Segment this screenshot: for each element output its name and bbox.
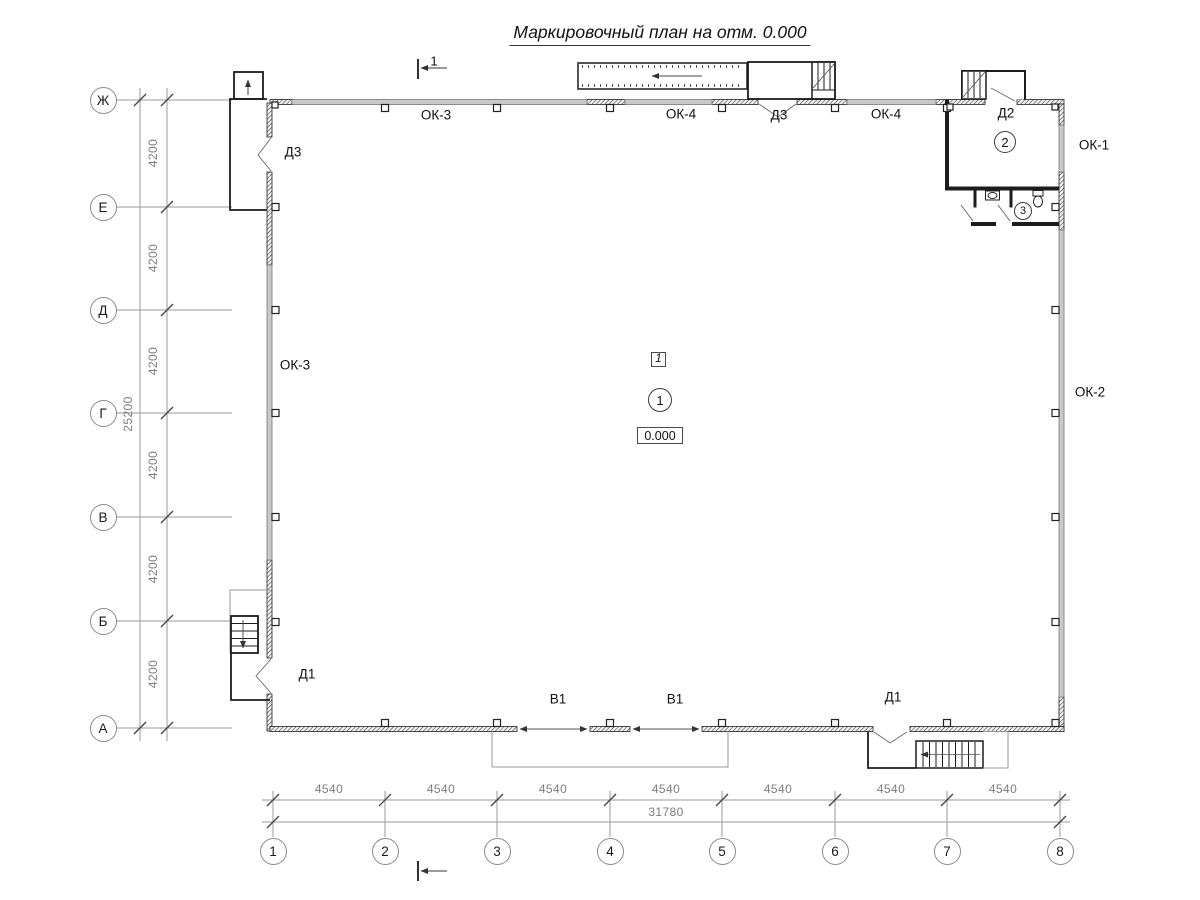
axis-col-3: 3 bbox=[484, 838, 511, 865]
door-swing-d1-left bbox=[256, 659, 271, 693]
axis-col-4: 4 bbox=[597, 838, 624, 865]
entrance-block-top-left bbox=[230, 72, 267, 210]
section-mark-label: 1 bbox=[430, 54, 437, 69]
dim-v-1: 4200 bbox=[146, 139, 160, 167]
dim-h-5: 4540 bbox=[764, 782, 792, 796]
axis-grid-lines bbox=[116, 88, 1070, 837]
dim-h-total: 31780 bbox=[648, 805, 683, 819]
gate-mark-v1-a: В1 bbox=[550, 692, 567, 707]
door-swing-wc1 bbox=[961, 205, 973, 221]
floor-plan-canvas: Маркировочный план на отм. 0.000 ОК-3 ОК… bbox=[0, 0, 1200, 900]
pilasters bbox=[272, 102, 1059, 727]
room-number-2: 2 bbox=[994, 131, 1016, 153]
axis-row-a: А bbox=[90, 715, 117, 742]
axis-row-v: В bbox=[90, 504, 117, 531]
axis-col-2: 2 bbox=[372, 838, 399, 865]
dim-h-7: 4540 bbox=[989, 782, 1017, 796]
dim-v-6: 4200 bbox=[146, 660, 160, 688]
room-number-1: 1 bbox=[648, 388, 672, 412]
door-mark-d3-left: Д3 bbox=[285, 145, 302, 160]
vestibule-top-right bbox=[962, 71, 1025, 100]
stair-block-bottom-right bbox=[868, 732, 1008, 769]
exterior-walls-hatched bbox=[267, 100, 1064, 732]
dim-h-4: 4540 bbox=[652, 782, 680, 796]
dim-v-4: 4200 bbox=[146, 451, 160, 479]
axis-row-d: Д bbox=[90, 297, 117, 324]
interior-walls bbox=[255, 100, 1059, 654]
door-swing-d1-bottom bbox=[874, 732, 907, 743]
stair-block-bottom-left bbox=[230, 590, 270, 700]
dim-h-3: 4540 bbox=[539, 782, 567, 796]
dim-h-6: 4540 bbox=[877, 782, 905, 796]
door-mark-d3-top: Д3 bbox=[771, 108, 788, 123]
floor-type-mark: 1 bbox=[651, 352, 666, 367]
window-mark-ok1: ОК-1 bbox=[1079, 138, 1109, 153]
window-mark-ok4-a: ОК-4 bbox=[666, 107, 696, 122]
dim-v-2: 4200 bbox=[146, 244, 160, 272]
door-swing-d3-left bbox=[258, 138, 271, 171]
dim-v-total: 25200 bbox=[121, 396, 135, 431]
door-mark-d1-left: Д1 bbox=[299, 667, 316, 682]
room-number-3: 3 bbox=[1014, 202, 1032, 220]
door-mark-d1-bottom: Д1 bbox=[885, 690, 902, 705]
dim-h-2: 4540 bbox=[427, 782, 455, 796]
axis-row-e: Е bbox=[90, 194, 117, 221]
dim-h-1: 4540 bbox=[315, 782, 343, 796]
dim-v-3: 4200 bbox=[146, 347, 160, 375]
window-mark-ok3-left: ОК-3 bbox=[280, 358, 310, 373]
door-mark-d2: Д2 bbox=[998, 106, 1015, 121]
window-mark-ok4-b: ОК-4 bbox=[871, 107, 901, 122]
axis-row-zh: Ж bbox=[90, 87, 117, 114]
section-marks bbox=[418, 59, 447, 881]
axis-col-7: 7 bbox=[934, 838, 961, 865]
sanitary-fixtures bbox=[986, 191, 1044, 208]
gate-mark-v1-b: В1 bbox=[667, 692, 684, 707]
axis-col-8: 8 bbox=[1047, 838, 1074, 865]
axis-col-5: 5 bbox=[709, 838, 736, 865]
drawing-title: Маркировочный план на отм. 0.000 bbox=[509, 22, 810, 46]
axis-row-g: Г bbox=[90, 400, 117, 427]
axis-col-1: 1 bbox=[260, 838, 287, 865]
axis-col-6: 6 bbox=[822, 838, 849, 865]
axis-row-b: Б bbox=[90, 608, 117, 635]
door-swing-wc2 bbox=[998, 205, 1010, 221]
vestibule-top bbox=[748, 62, 835, 99]
loading-ramp bbox=[578, 63, 747, 89]
dim-v-5: 4200 bbox=[146, 555, 160, 583]
linework-overlay bbox=[0, 0, 1200, 900]
door-swings bbox=[256, 88, 1015, 743]
gate-openings bbox=[492, 729, 728, 767]
window-mark-ok3-top: ОК-3 bbox=[421, 108, 451, 123]
window-mark-ok2: ОК-2 bbox=[1075, 385, 1105, 400]
level-mark: 0.000 bbox=[637, 427, 683, 444]
